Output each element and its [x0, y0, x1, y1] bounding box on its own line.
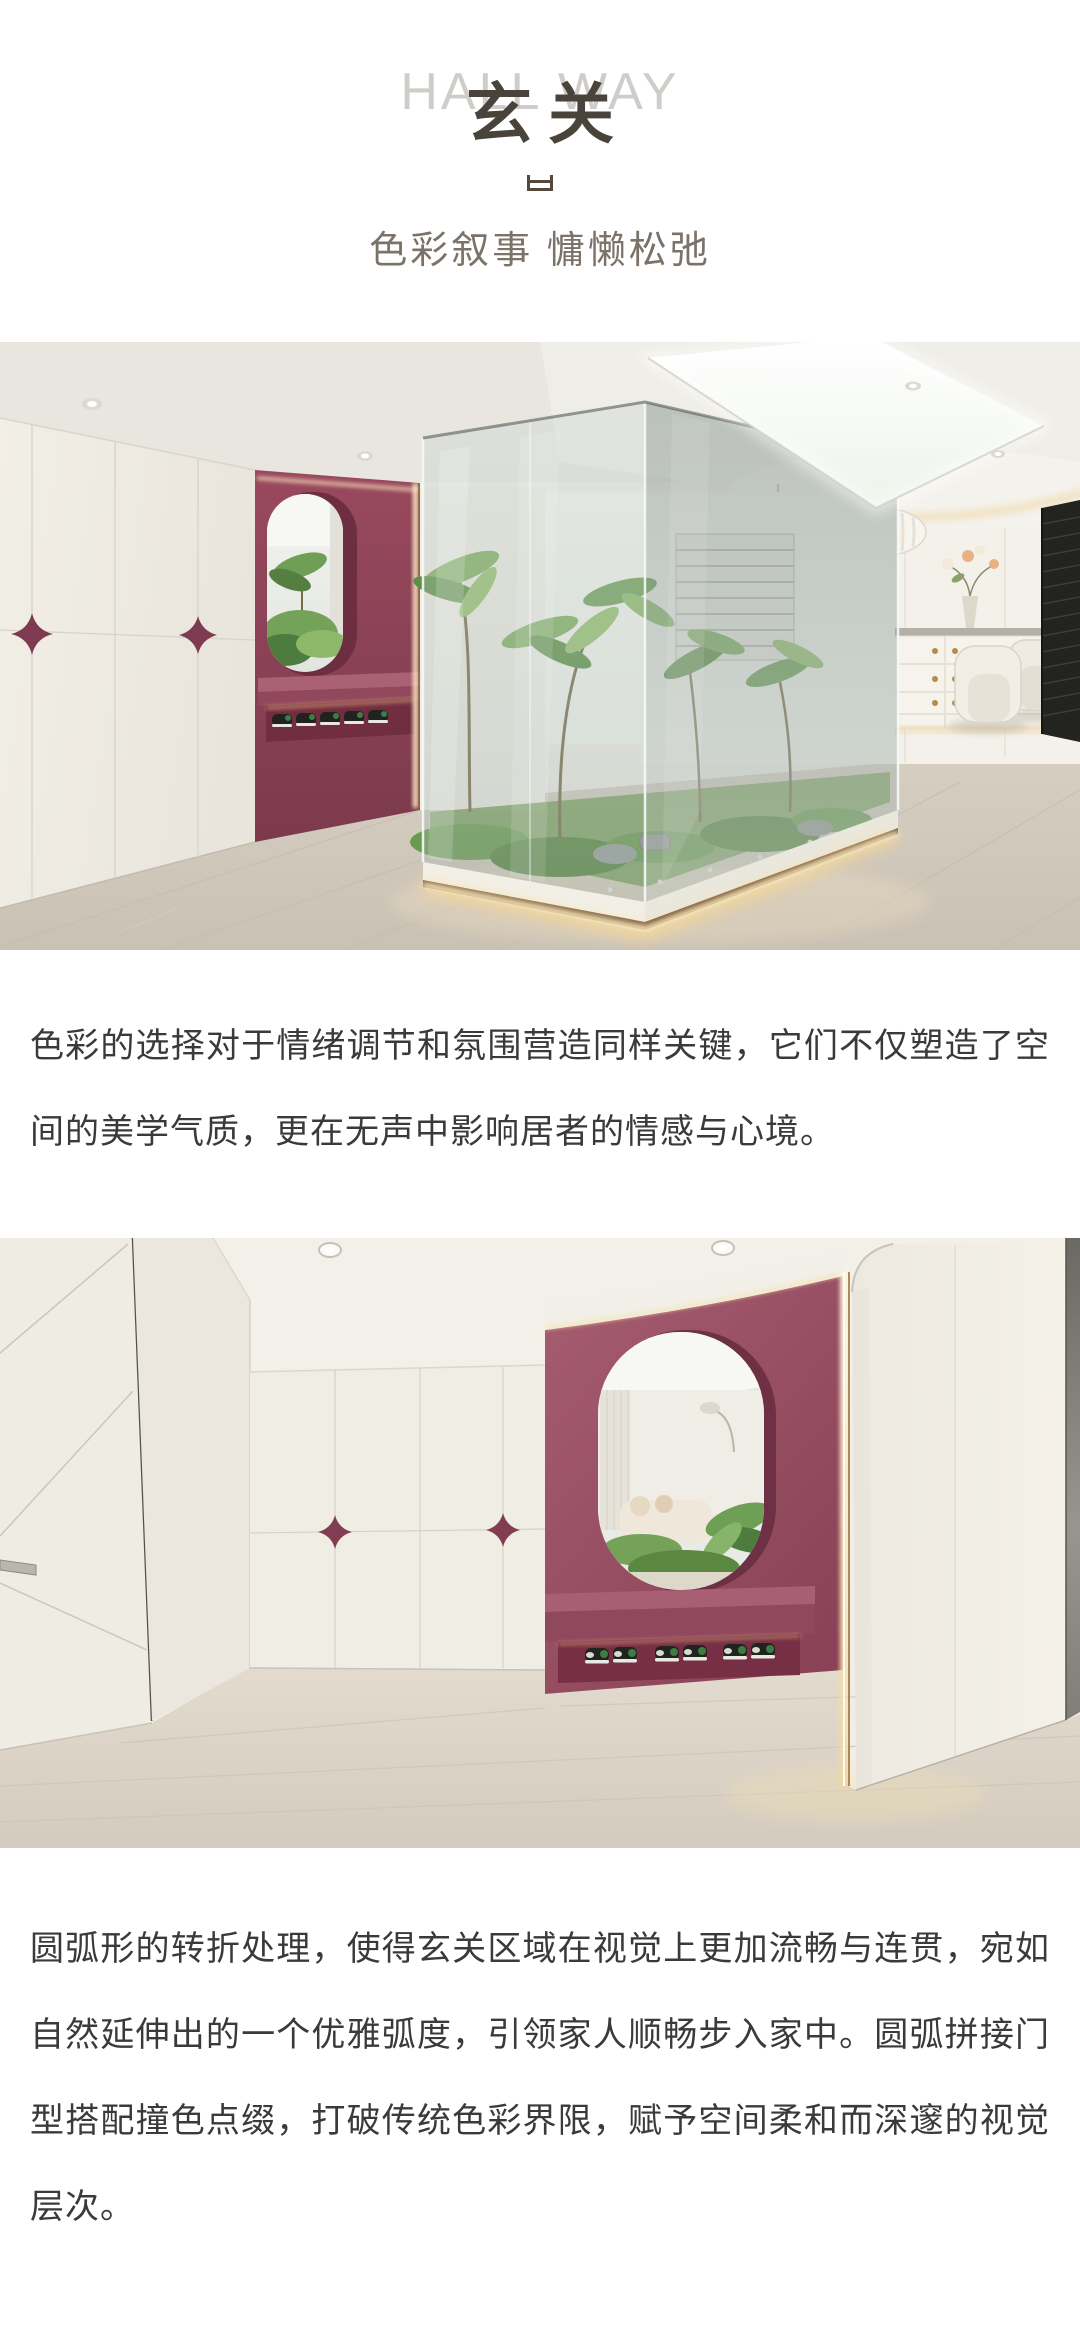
wardrobe-wall [250, 1365, 545, 1670]
paragraph-arc-design: 圆弧形的转折处理，使得玄关区域在视觉上更加流畅与连贯，宛如自然延伸出的一个优雅弧… [30, 1906, 1050, 2250]
hallway-garden-illustration [0, 342, 1080, 950]
led-strip [413, 483, 418, 808]
wardrobe-wall [0, 418, 255, 908]
dark-slat-wall [1042, 500, 1080, 742]
paragraph-color-choice: 色彩的选择对于情绪调节和氛围营造同样关键，它们不仅塑造了空间的美学气质，更在无声… [30, 1003, 1050, 1175]
burgundy-niche [255, 470, 420, 842]
gray-edge-panel [1066, 1238, 1080, 1720]
hallway-arched-entry-photo [0, 1238, 1080, 1848]
hallway-glass-garden-photo [0, 342, 1080, 950]
article-page: HALL WAY 玄关 色彩叙事 慵懒松弛 [0, 0, 1080, 2328]
section-header: HALL WAY 玄关 色彩叙事 慵懒松弛 [0, 0, 1080, 342]
subtitle: 色彩叙事 慵懒松弛 [0, 219, 1080, 274]
divider-glyph-icon [527, 175, 553, 191]
shoe-bench [258, 672, 420, 742]
corner-wall [133, 1238, 250, 1721]
hallway-entry-illustration [0, 1238, 1080, 1848]
entry-door [0, 1238, 152, 1750]
page-title: 玄关 [0, 77, 1080, 153]
shoe-bench [545, 1586, 815, 1683]
curved-cabinet [852, 1240, 1066, 1790]
